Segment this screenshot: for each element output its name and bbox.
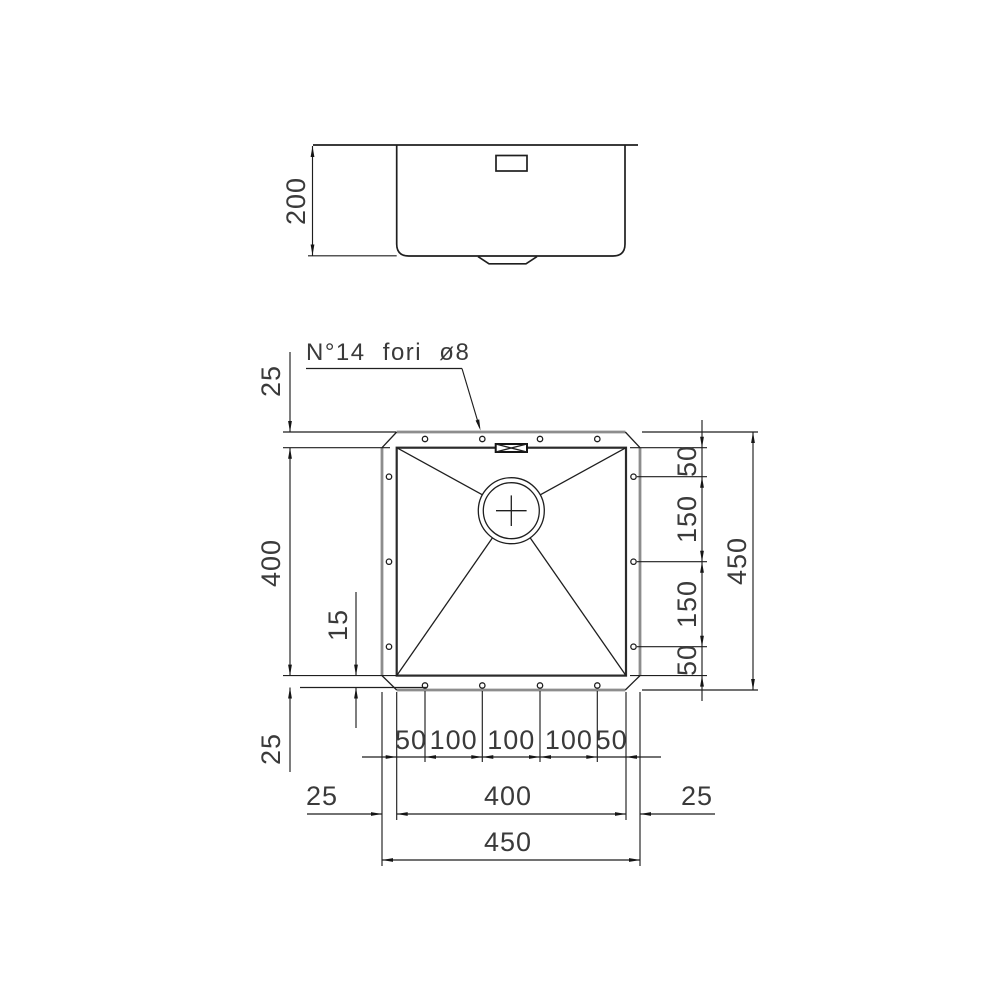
arrowhead-left — [640, 812, 651, 816]
mounting-hole — [631, 559, 636, 564]
arrowhead-right — [371, 812, 382, 816]
arrowhead-left — [626, 755, 637, 759]
arrowhead-right — [471, 755, 482, 759]
drain-boss-side — [478, 257, 537, 264]
dimension-label: 100 — [430, 725, 478, 755]
dimension-label: 150 — [672, 580, 702, 628]
drain — [478, 478, 544, 544]
dimension-label: 400 — [484, 781, 532, 811]
slope-line-ne — [540, 448, 626, 495]
holes-annotation: N°14 fori ø8 — [306, 339, 481, 431]
arrowhead-left — [482, 755, 493, 759]
dimension-label: 450 — [484, 827, 532, 857]
dimension-label: 15 — [323, 609, 353, 641]
arrowhead-up — [751, 432, 755, 443]
dimension-overall-height: 450 — [722, 432, 755, 690]
slope-line-nw — [397, 448, 483, 495]
dimension-label: 400 — [256, 539, 286, 587]
arrowhead-left — [425, 755, 436, 759]
dimension-label: 50 — [672, 644, 702, 676]
side-view: 200 — [281, 145, 638, 264]
dimension-label: 25 — [256, 733, 286, 765]
slope-line-sw — [397, 538, 493, 676]
arrowhead-up — [700, 562, 704, 573]
plan-view — [382, 432, 640, 690]
dimension-label: 25 — [306, 781, 338, 811]
arrowhead-down — [700, 551, 704, 562]
mounting-hole — [595, 436, 600, 441]
arrowhead-up — [354, 688, 358, 699]
mounting-hole — [386, 474, 391, 479]
sink-technical-drawing: 200 — [0, 0, 1000, 1000]
sink-bowl-profile — [397, 145, 625, 256]
dimension-bowl-width-row: 25 400 25 — [306, 781, 715, 816]
mounting-hole — [631, 644, 636, 649]
dimension-label: 100 — [487, 725, 535, 755]
mounting-holes — [386, 436, 636, 688]
arrowhead-left — [540, 755, 551, 759]
mounting-hole — [386, 644, 391, 649]
arrowhead-up — [288, 688, 292, 699]
arrowhead-right — [586, 755, 597, 759]
mounting-hole — [422, 436, 427, 441]
arrowhead-left — [382, 858, 393, 862]
mounting-hole — [537, 683, 542, 688]
bowl-outline-plan — [397, 448, 626, 676]
leader-arrowhead — [476, 419, 481, 430]
arrowhead-up — [700, 477, 704, 488]
arrowhead-down — [751, 679, 755, 690]
arrowhead-down — [311, 245, 315, 256]
dimension-right-hole-pitch: 50 150 150 50 — [672, 420, 704, 701]
dimension-label: 100 — [545, 725, 593, 755]
arrowhead-right — [529, 755, 540, 759]
mounting-hole — [595, 683, 600, 688]
bottom-dimensions: 50 100 100 100 50 25 400 25 450 — [306, 691, 715, 866]
dimension-depth-200: 200 — [281, 146, 397, 256]
holes-note-label: N°14 fori ø8 — [306, 339, 470, 366]
arrowhead-up — [288, 448, 292, 459]
mounting-hole — [480, 436, 485, 441]
dimension-label: 25 — [681, 781, 713, 811]
mounting-hole — [631, 474, 636, 479]
arrowhead-right — [615, 812, 626, 816]
dimension-hole-pitch-row: 50 100 100 100 50 — [362, 725, 661, 759]
arrowhead-right — [386, 755, 397, 759]
drawing-canvas: 200 — [0, 0, 1000, 1000]
overflow-slot — [496, 444, 527, 452]
mounting-hole — [480, 683, 485, 688]
overflow-opening-side — [496, 156, 527, 172]
arrowhead-right — [629, 858, 640, 862]
flange-outline — [382, 432, 640, 690]
arrowhead-down — [288, 665, 292, 676]
dimension-label: 25 — [256, 365, 286, 397]
mounting-hole — [537, 436, 542, 441]
leader-line — [462, 369, 480, 428]
arrowhead-down — [288, 421, 292, 432]
dimension-label: 450 — [722, 537, 752, 585]
arrowhead-left — [397, 812, 408, 816]
corner-chamfer-se — [625, 676, 640, 690]
dimension-label: 150 — [672, 495, 702, 543]
dimension-label: 50 — [672, 445, 702, 477]
arrowhead-down — [354, 665, 358, 676]
dimension-overall-width-row: 450 — [382, 827, 640, 862]
left-dimensions: 25 400 25 15 — [256, 352, 427, 772]
dimension-label-depth: 200 — [281, 177, 311, 225]
bowl-slope-lines — [397, 448, 626, 676]
mounting-hole — [386, 559, 391, 564]
corner-chamfer-ne — [625, 432, 640, 448]
corner-chamfer-nw — [382, 432, 397, 448]
slope-line-se — [530, 538, 626, 676]
arrowhead-up — [311, 146, 315, 157]
arrowhead-up — [700, 676, 704, 687]
dimension-label: 50 — [395, 725, 427, 755]
dimension-label: 50 — [596, 725, 628, 755]
right-dimensions: 50 150 150 50 450 — [630, 420, 758, 701]
